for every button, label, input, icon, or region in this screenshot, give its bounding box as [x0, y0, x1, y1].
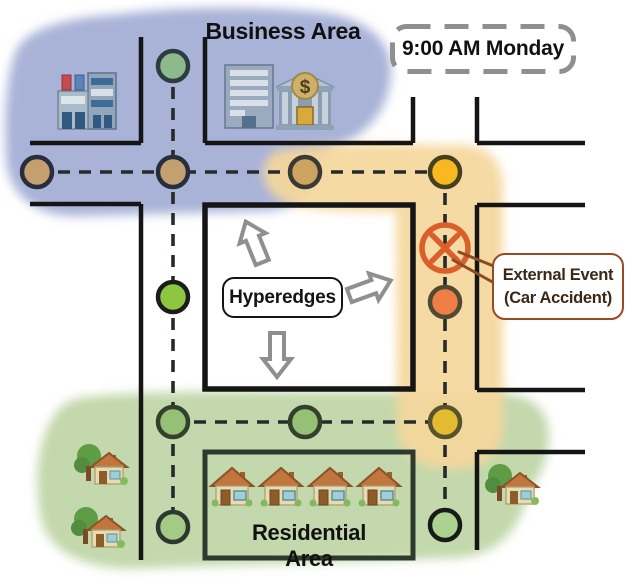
- external-event-callout: External Event (Car Accident): [492, 253, 624, 320]
- business-area-label: Business Area: [198, 18, 368, 45]
- graph-node-mid-west: [158, 282, 188, 312]
- arrow-up-left-icon: [233, 216, 275, 267]
- graph-node-business-north: [158, 51, 188, 81]
- graph-node-residential-west: [158, 407, 188, 437]
- external-event-line2: (Car Accident): [504, 287, 612, 309]
- hyperedges-callout: Hyperedges: [222, 277, 343, 318]
- graph-node-residential-center: [290, 407, 320, 437]
- residential-area-label: Residential Area: [228, 520, 390, 572]
- graph-node-residential-southwest: [158, 512, 188, 542]
- arrow-down-icon: [263, 333, 291, 377]
- office-building-icon: [225, 65, 273, 128]
- graph-node-business-west: [22, 157, 52, 187]
- external-event-line1: External Event: [503, 264, 613, 286]
- graph-node-residential-southeast: [430, 510, 460, 540]
- arrow-right-icon: [345, 267, 396, 308]
- graph-node-event-south: [430, 287, 460, 317]
- time-badge-label: 9:00 AM Monday: [392, 26, 574, 72]
- hypergraph-road-diagram: $: [0, 0, 628, 588]
- graph-node-business-center: [158, 157, 188, 187]
- hyperedges-label: Hyperedges: [229, 287, 336, 309]
- graph-node-residential-east: [430, 407, 460, 437]
- graph-node-event-north: [430, 157, 460, 187]
- graph-node-business-east: [290, 157, 320, 187]
